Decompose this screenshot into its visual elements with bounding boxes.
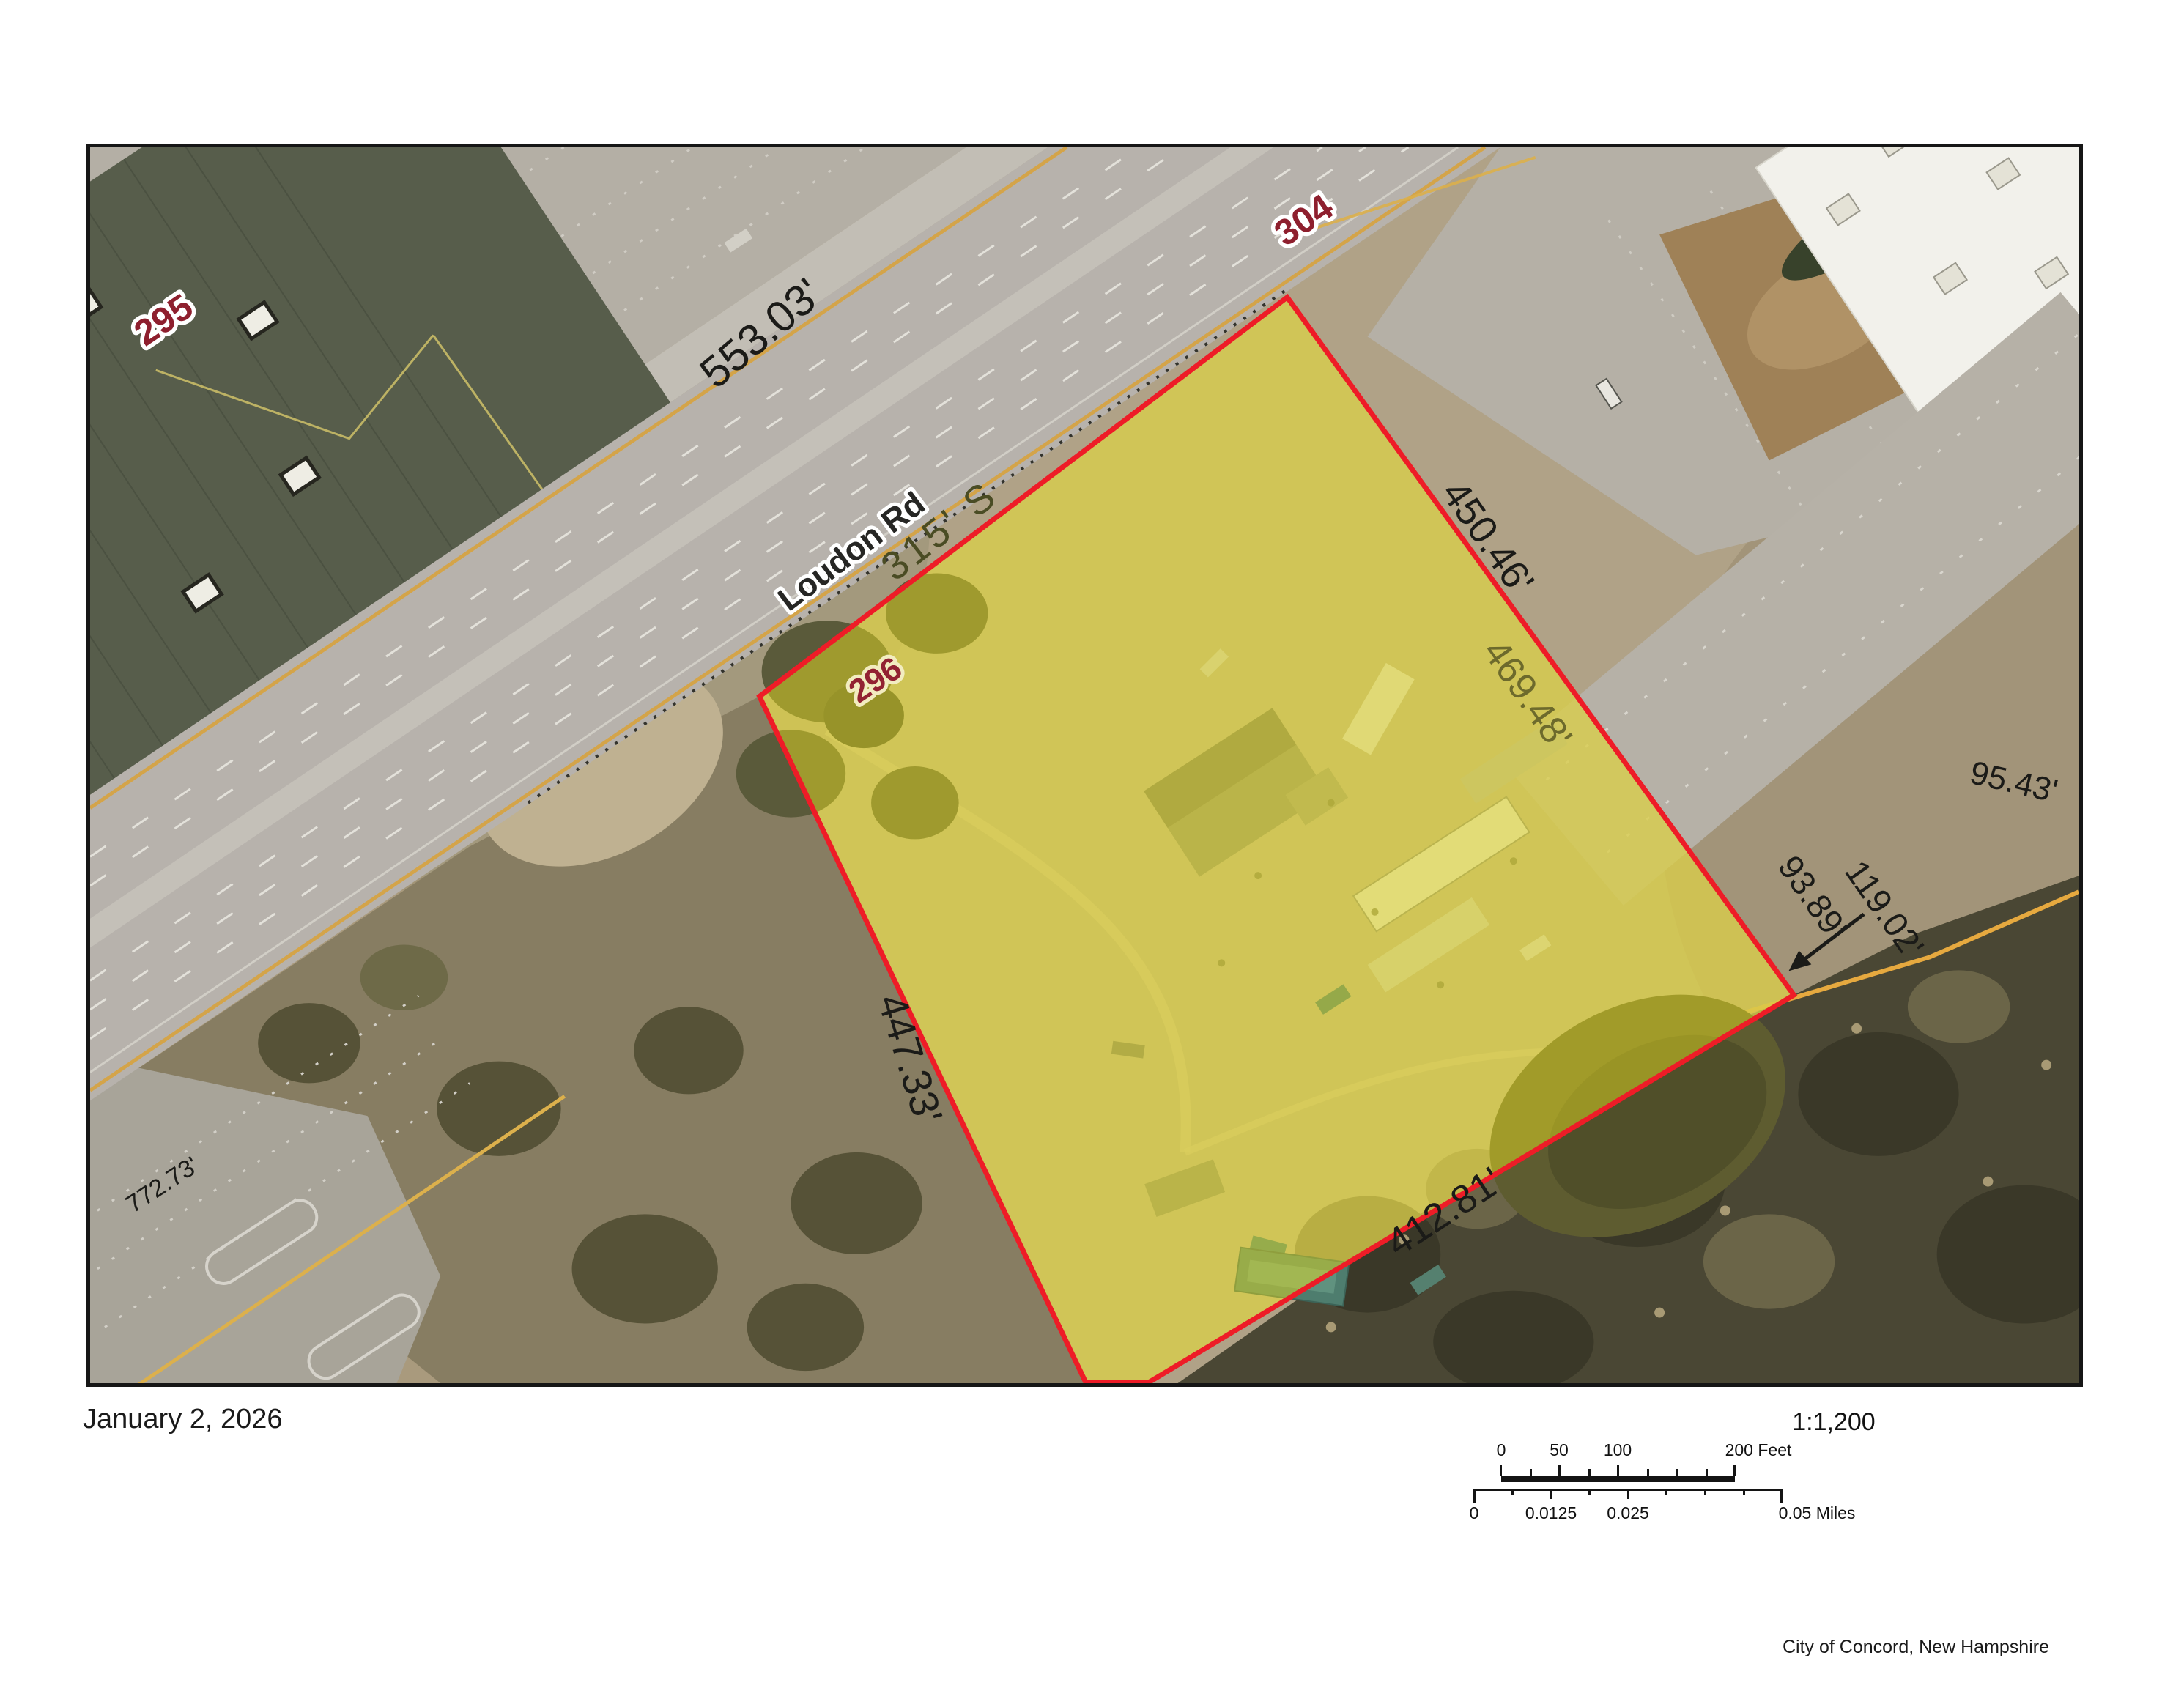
miles-tick-0125: 0.0125 <box>1525 1503 1577 1523</box>
map-frame: 553.03' Loudon Rd 315' S 304 295 296 450… <box>86 144 2083 1387</box>
scale-ratio-label: 1:1,200 <box>1724 1408 1944 1437</box>
aerial-scene: 553.03' Loudon Rd 315' S 304 295 296 450… <box>90 147 2079 1383</box>
feet-tick-50: 50 <box>1550 1440 1569 1460</box>
date-label: January 2, 2026 <box>83 1404 283 1435</box>
feet-tick-0: 0 <box>1497 1440 1506 1460</box>
miles-ruler <box>1473 1489 1783 1503</box>
scale-ruler <box>1465 1465 1802 1508</box>
miles-tick-05: 0.05 Miles <box>1779 1503 1856 1523</box>
feet-tick-200: 200 Feet <box>1725 1440 1792 1460</box>
miles-tick-025: 0.025 <box>1607 1503 1649 1523</box>
page: { "page": { "date": "January 2, 2026", "… <box>0 0 2184 1688</box>
miles-tick-0: 0 <box>1470 1503 1479 1523</box>
feet-ruler <box>1500 1465 1736 1482</box>
feet-tick-100: 100 <box>1604 1440 1632 1460</box>
attribution: City of Concord, New Hampshire <box>1678 1637 2154 1658</box>
